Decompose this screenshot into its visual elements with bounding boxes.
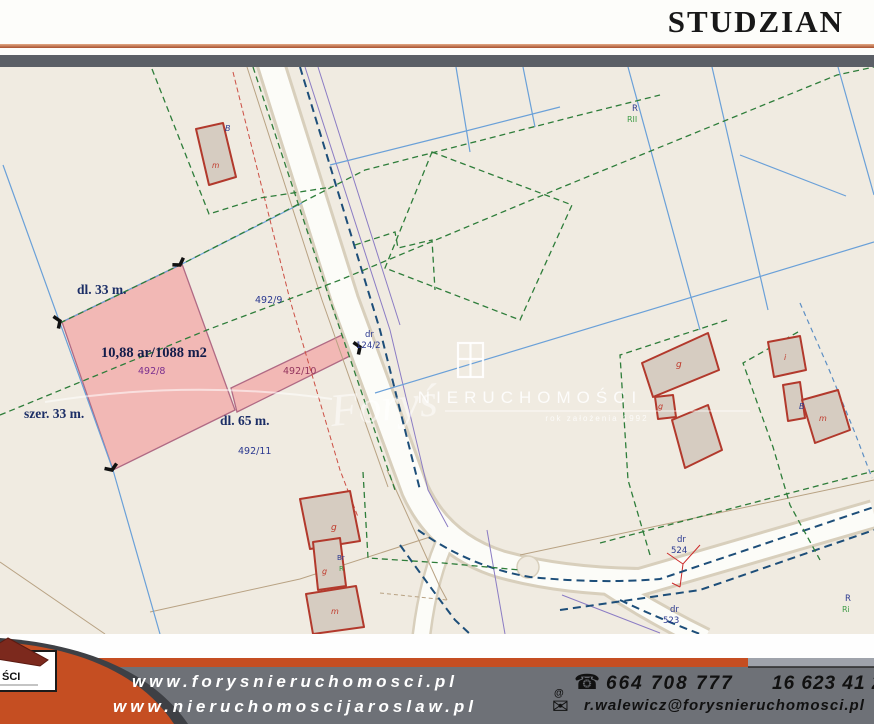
map-label: 492/11	[238, 446, 271, 457]
map-label: 523	[663, 616, 679, 626]
website-1: www.forysnieruchomosci.pl	[60, 672, 530, 692]
map-label: R	[339, 565, 344, 573]
map-label: szer. 33 m.	[24, 406, 84, 421]
footer: ŚCI www.forysnieruchomosci.pl www.nieruc…	[0, 634, 874, 724]
map-label: RII	[627, 115, 637, 124]
map-label: m	[819, 414, 827, 423]
map-label: g	[676, 360, 682, 370]
map-label: 492/9	[255, 295, 282, 306]
map-label: 492/10	[283, 366, 316, 377]
map-canvas: dl. 33 m.szer. 33 m.dl. 65 m.10,88 ar/10…	[0, 67, 874, 634]
map-label: dr	[365, 330, 374, 340]
map-label: 124/2	[356, 341, 381, 351]
cadastral-map: dl. 33 m.szer. 33 m.dl. 65 m.10,88 ar/10…	[0, 67, 874, 634]
watermark-brand: NIERUCHOMOŚCI	[418, 388, 642, 407]
logo-text: ŚCI	[2, 670, 20, 683]
phone-number-landline: 16 623 41 27	[772, 673, 874, 695]
map-label: g	[331, 523, 337, 533]
map-label: dr	[670, 605, 679, 615]
website-links: www.forysnieruchomosci.pl www.nieruchomo…	[60, 672, 530, 717]
page-title: STUDZIAN	[668, 4, 844, 40]
road-island	[517, 556, 539, 578]
map-label: dl. 33 m.	[77, 282, 127, 297]
watermark-tagline: rok założenia 1992	[545, 414, 648, 423]
phone-number-mobile: 664 708 777	[606, 673, 734, 695]
map-label: 10,88 ar/1088 m2	[101, 345, 207, 361]
map-label: 492/8	[138, 366, 165, 377]
map-label: Br	[337, 554, 345, 562]
map-label: 524	[671, 546, 687, 556]
website-2: www.nieruchomoscijaroslaw.pl	[60, 697, 530, 717]
gray-divider-bar	[0, 55, 874, 67]
building-g-2	[313, 538, 346, 590]
map-label: dr	[677, 535, 686, 545]
map-label: R	[632, 104, 638, 114]
building-i	[768, 336, 806, 377]
map-label: B	[225, 124, 231, 133]
orange-divider	[0, 44, 874, 48]
map-label: Ri	[842, 605, 850, 614]
email-icon: ✉@	[552, 694, 569, 719]
footer-gap	[0, 634, 874, 658]
email-address: r.walewicz@forysnieruchomosci.pl	[584, 697, 865, 714]
map-label: g	[658, 402, 663, 411]
map-label: R	[845, 594, 851, 604]
map-label: m	[212, 161, 219, 170]
map-label: m	[331, 607, 339, 616]
header: STUDZIAN	[0, 0, 874, 44]
listing-image: STUDZIAN	[0, 0, 874, 724]
phone-icon: ☎	[574, 670, 600, 695]
map-label: g	[322, 567, 327, 576]
map-label: B	[799, 402, 805, 411]
map-label: dl. 65 m.	[220, 413, 270, 428]
footer-gray-segment	[748, 658, 874, 667]
